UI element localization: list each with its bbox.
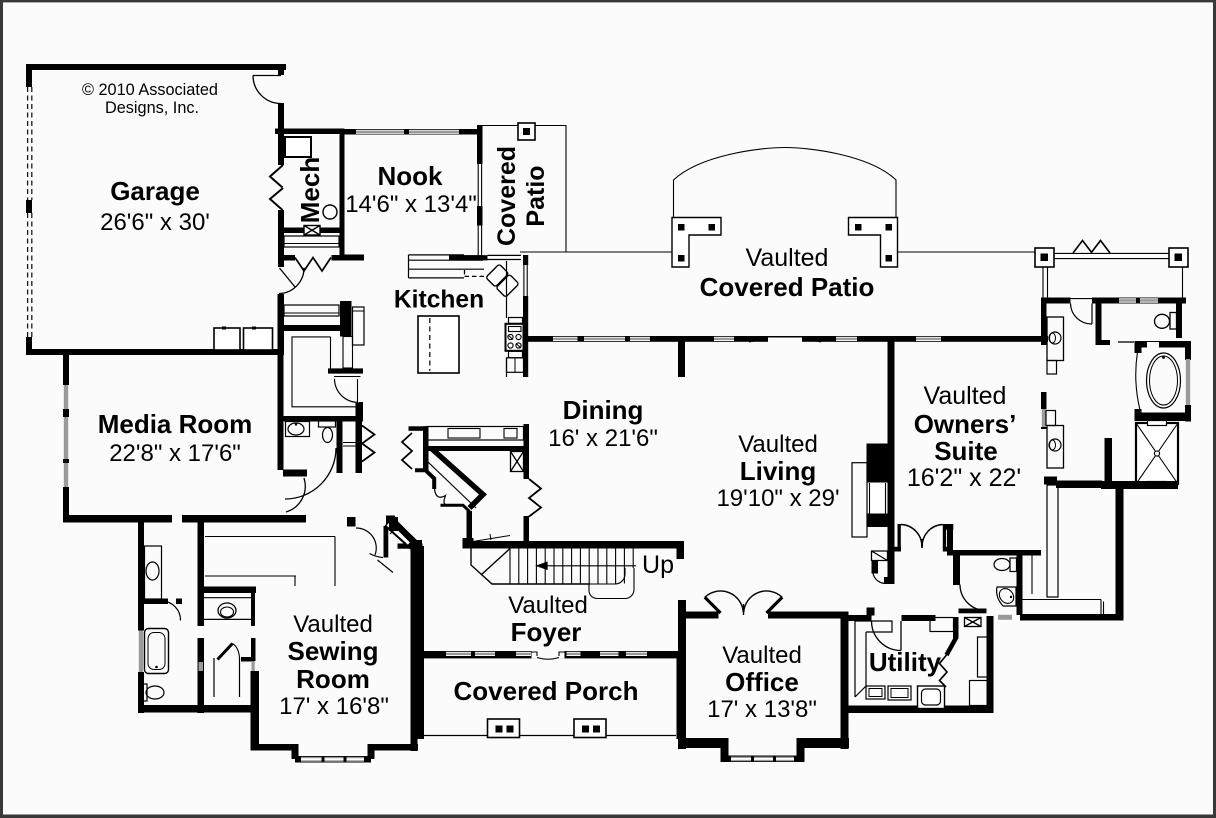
svg-text:Room: Room (296, 664, 370, 694)
svg-text:Garage: Garage (110, 176, 200, 206)
svg-text:Sewing: Sewing (287, 636, 378, 666)
svg-text:19'10" x 29': 19'10" x 29' (716, 485, 839, 512)
svg-text:Covered Patio: Covered Patio (700, 272, 875, 302)
svg-text:Covered: Covered (493, 146, 521, 246)
svg-text:22'8" x 17'6": 22'8" x 17'6" (109, 440, 241, 467)
svg-text:Foyer: Foyer (511, 617, 582, 647)
svg-text:Covered Porch: Covered Porch (454, 676, 639, 706)
svg-text:16'2" x 22': 16'2" x 22' (907, 464, 1021, 492)
svg-text:Up: Up (642, 551, 674, 579)
svg-text:Owners’: Owners’ (914, 409, 1017, 439)
svg-text:17' x 16'8": 17' x 16'8" (279, 693, 389, 720)
svg-text:Dining: Dining (563, 395, 644, 425)
svg-text:Utility: Utility (869, 647, 942, 677)
svg-text:17' x 13'8": 17' x 13'8" (707, 696, 817, 723)
svg-text:Vaulted: Vaulted (738, 431, 818, 458)
svg-text:Mech: Mech (295, 157, 325, 223)
svg-text:Suite: Suite (934, 436, 998, 466)
svg-text:© 2010 Associated: © 2010 Associated (82, 81, 218, 99)
svg-text:16' x 21'6": 16' x 21'6" (548, 425, 658, 452)
svg-text:Vaulted: Vaulted (722, 642, 802, 669)
svg-text:Nook: Nook (378, 161, 444, 191)
svg-text:Media Room: Media Room (98, 409, 253, 439)
svg-text:Vaulted: Vaulted (924, 382, 1007, 410)
svg-text:Living: Living (740, 456, 817, 486)
svg-text:Office: Office (725, 667, 799, 697)
svg-text:26'6" x 30': 26'6" x 30' (100, 209, 210, 236)
svg-text:Vaulted: Vaulted (293, 611, 373, 638)
svg-text:Kitchen: Kitchen (394, 287, 484, 314)
svg-text:14'6" x 13'4": 14'6" x 13'4" (345, 191, 477, 218)
svg-text:Designs, Inc.: Designs, Inc. (105, 99, 199, 117)
svg-text:Vaulted: Vaulted (746, 244, 829, 272)
svg-text:Patio: Patio (522, 165, 550, 226)
svg-text:Vaulted: Vaulted (508, 592, 588, 619)
